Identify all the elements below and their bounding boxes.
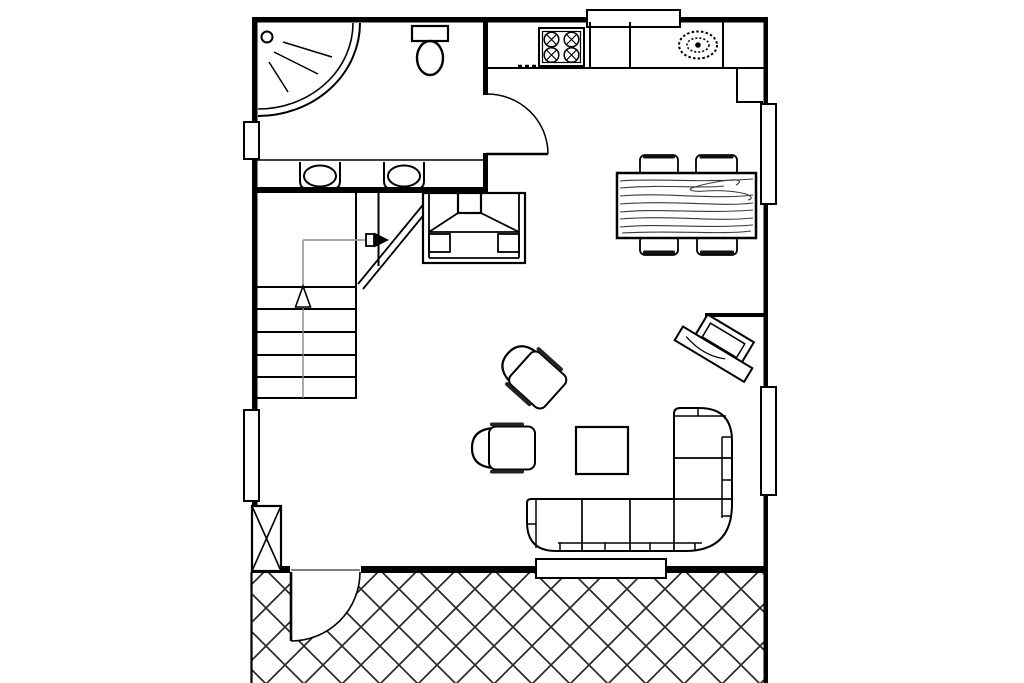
floor-plan-canvas <box>0 0 1024 683</box>
chair-seat <box>489 427 535 470</box>
window-living-left <box>244 410 259 501</box>
wall-top <box>252 17 768 23</box>
wall-bathroom-right-upper <box>483 17 488 95</box>
window-living-right <box>761 387 776 495</box>
fireplace <box>423 193 525 263</box>
chimney-column <box>252 506 281 571</box>
floor-plan-drawing <box>0 0 1024 683</box>
flue-box <box>458 193 481 213</box>
chair-arm <box>490 423 524 427</box>
wall-partial-tv-nook <box>705 313 765 317</box>
coffee-table <box>576 427 628 474</box>
arrow-tail-box <box>366 234 374 246</box>
window-kitchen-top <box>587 10 680 27</box>
chair-arm <box>490 470 524 474</box>
sink-drain <box>695 42 701 48</box>
window-bathroom-left <box>244 122 259 159</box>
window-dining-right <box>761 104 776 204</box>
window-living-bottom <box>536 559 666 578</box>
dining-table <box>617 173 756 238</box>
